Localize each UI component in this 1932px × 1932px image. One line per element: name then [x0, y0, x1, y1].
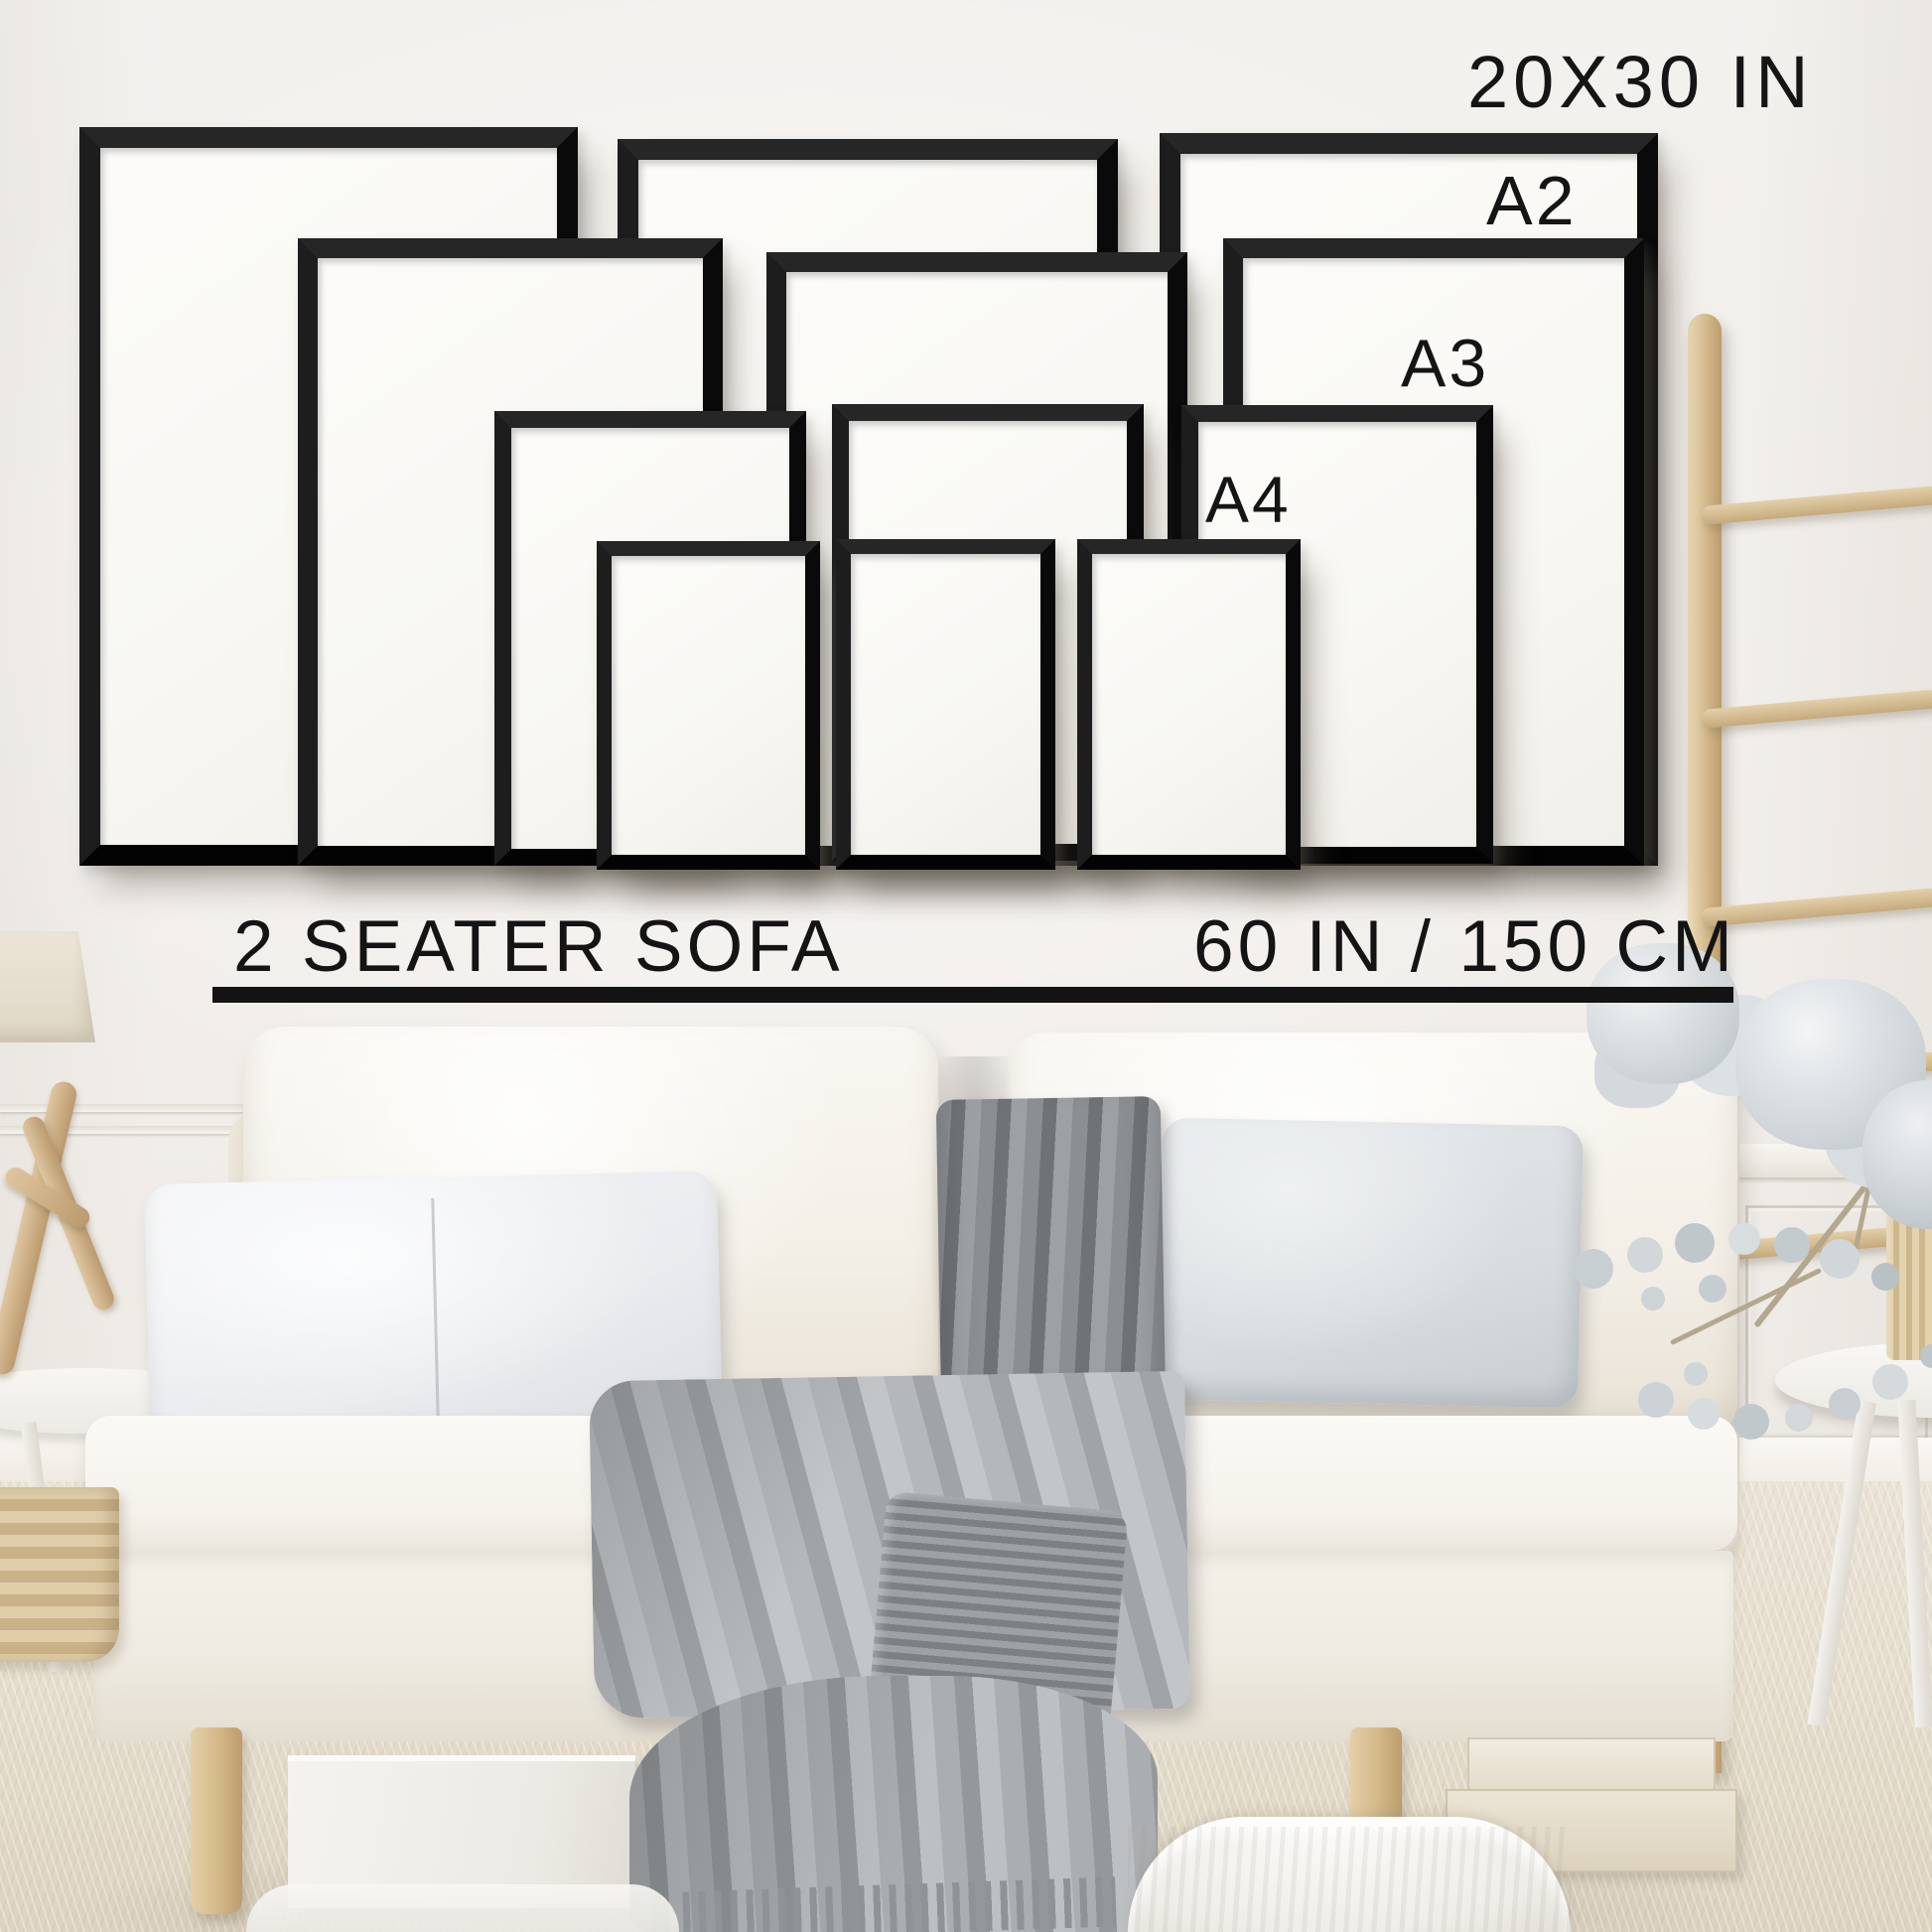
- sofa-width-caption: 60 IN / 150 CM: [1193, 905, 1736, 988]
- woven-basket: [0, 1487, 119, 1662]
- eucalyptus-branch: [1574, 1249, 1613, 1289]
- floor-cushion: [1128, 1817, 1571, 1932]
- floor-cushion: [246, 1884, 679, 1932]
- sofa-caption: 2 SEATER SOFA: [233, 905, 844, 988]
- sofa-width-line: [212, 987, 1733, 1003]
- size-guide-scene: 20X30 IN A2 A3 A4: [0, 0, 1932, 1932]
- eucalyptus-branch: [1638, 1382, 1674, 1418]
